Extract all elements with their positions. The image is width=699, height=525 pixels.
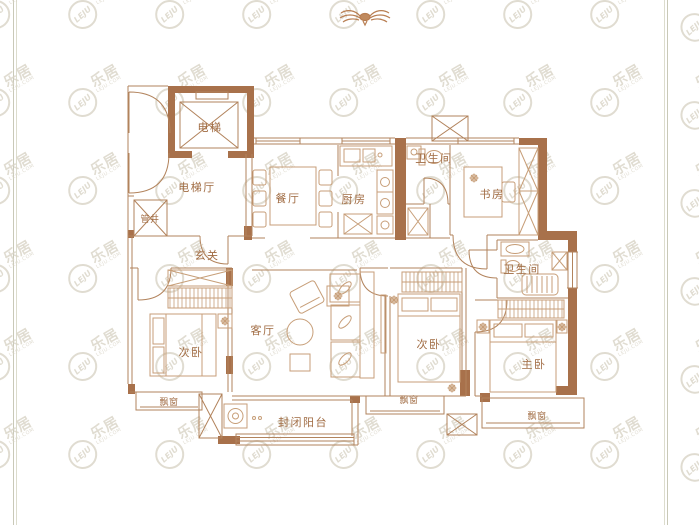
floorplan-drawing: 电梯 电梯厅 管井 玄关 餐厅 厨房 卫生间 书房 客厅 次卧 次卧 主卧 卫生… <box>0 0 699 525</box>
wardrobe-icon <box>498 300 564 318</box>
room-label-living: 客厅 <box>251 323 276 337</box>
room-label-balcony: 封闭阳台 <box>278 415 328 429</box>
coffee-table-icon <box>287 319 313 345</box>
study-shelf-column-icon <box>519 148 538 235</box>
room-label-dining: 餐厅 <box>276 191 301 205</box>
room-label-foyer: 玄关 <box>195 248 220 262</box>
shower-icon <box>552 252 567 270</box>
sofa-icon <box>330 272 374 378</box>
room-label-bath-top: 卫生间 <box>415 151 453 165</box>
partition-walls <box>128 86 568 445</box>
floorplan-page: LEJU乐居LEJU.COMLEJU乐居LEJU.COMLEJU乐居LEJU.C… <box>0 0 699 525</box>
ac-platform-icon <box>447 414 477 435</box>
room-label-elevator-hall: 电梯厅 <box>178 181 216 194</box>
furniture-kitchen <box>340 146 393 234</box>
furniture-living <box>287 272 386 378</box>
room-label-bedroom-left: 次卧 <box>179 345 204 359</box>
fridge-icon <box>344 214 372 234</box>
elevator-car-icon <box>180 92 238 148</box>
utility-shaft-icon <box>199 394 222 438</box>
room-label-bay-master: 飘窗 <box>527 410 546 422</box>
armchair-icon <box>289 280 325 314</box>
balcony-window <box>236 434 354 445</box>
north-indicator-icon <box>340 11 390 25</box>
vent-box-icon <box>432 116 468 141</box>
closet-nook-icon <box>408 208 428 235</box>
bed-icon <box>150 314 216 376</box>
washing-machine-icon <box>224 404 247 428</box>
wardrobe-icon <box>402 272 462 292</box>
room-label-elevator: 电梯 <box>198 121 223 134</box>
bed-icon <box>490 320 556 392</box>
furniture-bedroom-left <box>150 270 232 376</box>
room-label-bedroom-mid: 次卧 <box>417 337 442 351</box>
room-label-master: 主卧 <box>522 358 547 371</box>
furniture-master <box>477 300 567 392</box>
room-label-study: 书房 <box>480 188 505 201</box>
room-label-kitchen: 厨房 <box>342 193 367 206</box>
room-label-bath-right: 卫生间 <box>503 262 541 276</box>
bathtub-icon <box>522 274 558 295</box>
wardrobe-icon <box>168 270 232 308</box>
furniture-balcony <box>224 404 262 428</box>
furniture-bedroom-mid <box>390 272 463 393</box>
room-label-bay-left: 飘窗 <box>159 396 178 408</box>
room-label-pipe-shaft: 管井 <box>140 213 159 225</box>
room-label-bay-mid: 飘窗 <box>399 394 418 406</box>
